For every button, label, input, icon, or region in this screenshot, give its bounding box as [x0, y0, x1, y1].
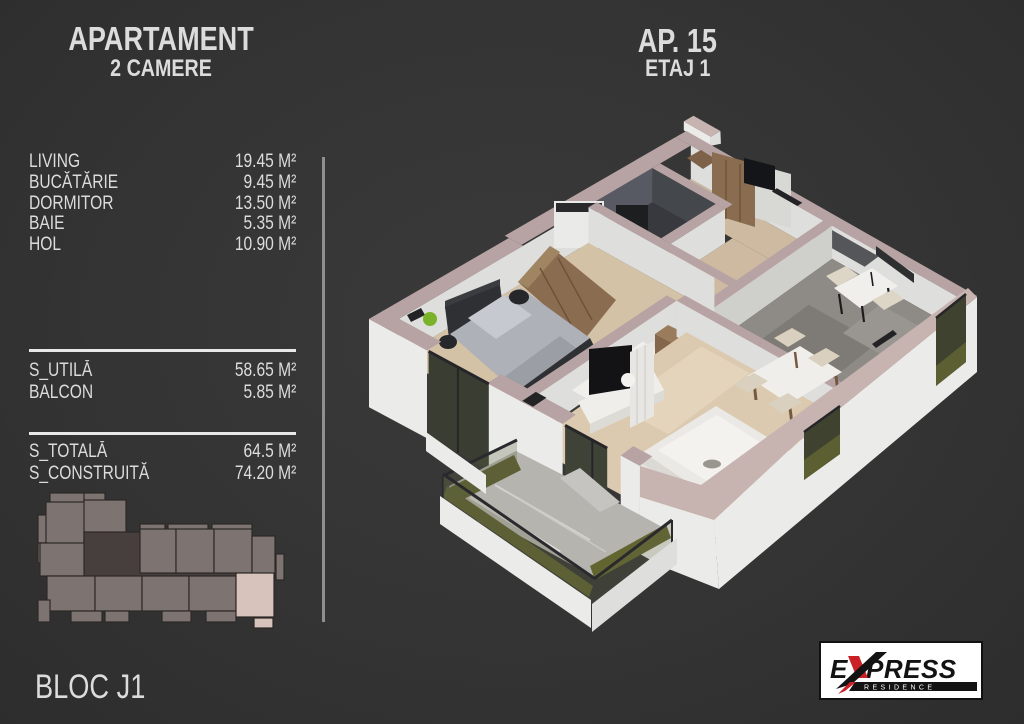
svg-text:RESIDENCE: RESIDENCE	[864, 684, 935, 691]
svg-text:E: E	[830, 654, 848, 684]
